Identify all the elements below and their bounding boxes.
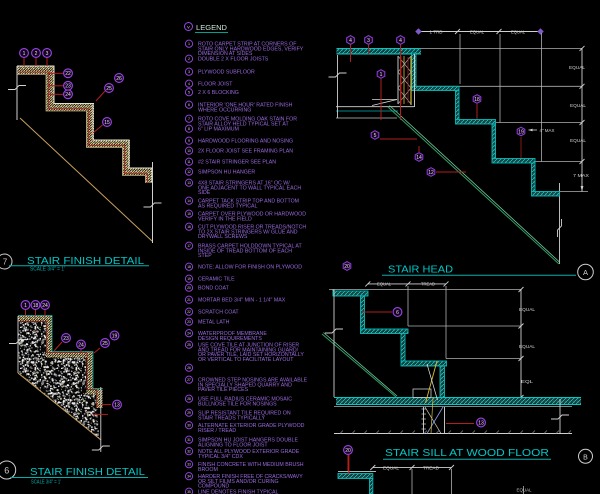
svg-text:SCRATCH COAT: SCRATCH COAT bbox=[198, 310, 239, 316]
svg-text:16: 16 bbox=[187, 225, 191, 229]
svg-text:5: 5 bbox=[374, 133, 377, 139]
svg-text:VERIFY IN THE FIELD: VERIFY IN THE FIELD bbox=[198, 216, 252, 222]
svg-text:CERAMIC TILE: CERAMIC TILE bbox=[198, 277, 235, 283]
svg-text:STAIR FINISH DETAIL: STAIR FINISH DETAIL bbox=[27, 255, 144, 267]
svg-text:25: 25 bbox=[102, 341, 108, 347]
svg-text:6: 6 bbox=[4, 466, 9, 476]
svg-text:12: 12 bbox=[187, 170, 191, 174]
svg-text:5: 5 bbox=[188, 91, 190, 95]
svg-text:MORTAR BED 3/4" MIN - 1 1/4" M: MORTAR BED 3/4" MIN - 1 1/4" MAX bbox=[198, 298, 286, 304]
svg-text:31: 31 bbox=[187, 438, 191, 442]
svg-text:23: 23 bbox=[63, 336, 69, 342]
svg-text:PAVER TILE PIECES: PAVER TILE PIECES bbox=[198, 387, 249, 393]
svg-text:2 X 6 BLOCKING: 2 X 6 BLOCKING bbox=[198, 90, 239, 96]
svg-text:3: 3 bbox=[46, 51, 49, 57]
svg-text:20: 20 bbox=[345, 448, 351, 454]
svg-text:26: 26 bbox=[116, 76, 122, 82]
svg-text:34: 34 bbox=[187, 475, 191, 479]
svg-text:10: 10 bbox=[187, 149, 191, 153]
svg-text:V: V bbox=[187, 25, 190, 30]
svg-text:BULLNOSE TILE FOR NOSINGS: BULLNOSE TILE FOR NOSINGS bbox=[198, 401, 277, 407]
svg-text:12: 12 bbox=[428, 170, 434, 176]
svg-text:EQUAL: EQUAL bbox=[470, 30, 484, 35]
svg-text:EQUAL: EQUAL bbox=[383, 466, 399, 471]
svg-text:ONE ADJACENT TO WALL TYPICAL E: ONE ADJACENT TO WALL TYPICAL EACH bbox=[198, 185, 301, 191]
svg-text:32: 32 bbox=[187, 450, 191, 454]
svg-text:STAIR TREADS TYPICALLY: STAIR TREADS TYPICALLY bbox=[198, 415, 266, 421]
svg-text:1: 1 bbox=[188, 42, 190, 46]
svg-text:22: 22 bbox=[187, 310, 191, 314]
svg-text:TREAD: TREAD bbox=[423, 466, 440, 471]
svg-text:BROOM: BROOM bbox=[198, 467, 218, 473]
svg-text:22: 22 bbox=[65, 71, 71, 77]
svg-text:35: 35 bbox=[187, 490, 191, 494]
svg-text:4" MAX: 4" MAX bbox=[540, 128, 555, 133]
svg-text:1: 1 bbox=[380, 72, 383, 78]
svg-text:30: 30 bbox=[187, 424, 191, 428]
svg-text:TYPICAL 3/4" CDX: TYPICAL 3/4" CDX bbox=[198, 454, 243, 460]
svg-text:ALIGNING TO FLOOR JOIST: ALIGNING TO FLOOR JOIST bbox=[198, 442, 268, 448]
svg-text:FLOOR JOIST: FLOOR JOIST bbox=[198, 82, 233, 88]
svg-text:SIMPSON HU HANGER: SIMPSON HU HANGER bbox=[198, 170, 255, 176]
svg-text:EQUAL: EQUAL bbox=[570, 103, 586, 108]
svg-text:EQUAL: EQUAL bbox=[570, 138, 586, 143]
svg-text:24: 24 bbox=[65, 92, 71, 98]
svg-text:20: 20 bbox=[187, 286, 191, 290]
svg-text:18: 18 bbox=[33, 303, 39, 309]
svg-text:14: 14 bbox=[416, 155, 422, 161]
svg-text:LEGEND: LEGEND bbox=[196, 23, 228, 32]
svg-text:25: 25 bbox=[106, 86, 112, 92]
svg-text:23: 23 bbox=[187, 320, 191, 324]
svg-text:EQUAL: EQUAL bbox=[377, 282, 391, 287]
svg-text:4: 4 bbox=[399, 38, 402, 44]
svg-text:NOTE: ALLOW FOR FINISH ON PLYW: NOTE: ALLOW FOR FINISH ON PLYWOOD bbox=[198, 265, 302, 271]
svg-text:4: 4 bbox=[349, 38, 352, 44]
svg-text:23: 23 bbox=[65, 84, 71, 90]
svg-text:STAIR SILL AT WOOD FLOOR: STAIR SILL AT WOOD FLOOR bbox=[385, 448, 549, 459]
svg-text:STAIR FINISH DETAIL: STAIR FINISH DETAIL bbox=[30, 466, 145, 478]
svg-text:2X FLOOR JOIST SEE FRAMING PLA: 2X FLOOR JOIST SEE FRAMING PLAN bbox=[198, 149, 293, 155]
svg-text:EQUAL: EQUAL bbox=[519, 344, 535, 349]
svg-text:SCALE 3/4" = 1': SCALE 3/4" = 1' bbox=[31, 480, 61, 486]
svg-text:33: 33 bbox=[187, 463, 191, 467]
svg-text:EQUAL: EQUAL bbox=[519, 307, 535, 312]
svg-text:4: 4 bbox=[188, 82, 190, 86]
svg-text:19: 19 bbox=[112, 333, 118, 339]
svg-text:DOUBLE 2 X FLOOR JOISTS: DOUBLE 2 X FLOOR JOISTS bbox=[198, 57, 269, 63]
svg-text:13: 13 bbox=[114, 402, 120, 408]
svg-text:EQUAL: EQUAL bbox=[517, 488, 533, 493]
svg-text:RISER / TREAD: RISER / TREAD bbox=[198, 428, 236, 434]
svg-text:STAIR HEAD: STAIR HEAD bbox=[388, 264, 453, 275]
svg-text:7: 7 bbox=[3, 258, 8, 267]
svg-text:17: 17 bbox=[187, 244, 191, 248]
svg-text:TREAD: TREAD bbox=[421, 282, 436, 287]
svg-text:24: 24 bbox=[42, 303, 48, 309]
svg-text:2: 2 bbox=[188, 57, 190, 61]
svg-text:WHERE OCCURRING: WHERE OCCURRING bbox=[198, 107, 251, 113]
svg-text:6" LIP MAXIMUM: 6" LIP MAXIMUM bbox=[198, 127, 239, 133]
svg-text:21: 21 bbox=[187, 298, 191, 302]
svg-text:3: 3 bbox=[367, 38, 370, 44]
svg-text:18: 18 bbox=[474, 97, 480, 103]
svg-text:B: B bbox=[583, 454, 588, 461]
svg-text:6: 6 bbox=[188, 103, 190, 107]
svg-text:28: 28 bbox=[187, 397, 191, 401]
svg-text:13: 13 bbox=[478, 420, 484, 426]
svg-text:1: 1 bbox=[24, 303, 27, 309]
svg-text:14: 14 bbox=[187, 199, 191, 203]
svg-text:8: 8 bbox=[188, 127, 190, 131]
svg-text:DESIGN REQUIREMENTS: DESIGN REQUIREMENTS bbox=[198, 336, 262, 342]
svg-text:27: 27 bbox=[187, 378, 191, 382]
svg-text:15: 15 bbox=[187, 212, 191, 216]
svg-text:METAL LATH: METAL LATH bbox=[198, 320, 230, 326]
svg-text:#2 STAIR STRINGER SEE PLAN: #2 STAIR STRINGER SEE PLAN bbox=[198, 160, 276, 166]
svg-text:OR VERTICAL TO FACILITATE LAYO: OR VERTICAL TO FACILITATE LAYOUT bbox=[198, 357, 294, 363]
svg-text:SCALE 3/4" = 1': SCALE 3/4" = 1' bbox=[30, 267, 65, 273]
svg-text:EQL: EQL bbox=[521, 379, 534, 384]
svg-text:1: 1 bbox=[23, 51, 26, 57]
svg-text:HARDWOOD FLOORING AND NOSING: HARDWOOD FLOORING AND NOSING bbox=[198, 139, 293, 145]
svg-text:24: 24 bbox=[78, 342, 84, 348]
svg-text:9: 9 bbox=[188, 139, 190, 143]
svg-text:LINE DENOTES FINISH TYPICAL: LINE DENOTES FINISH TYPICAL bbox=[198, 490, 279, 494]
svg-text:26: 26 bbox=[187, 366, 191, 370]
svg-text:19: 19 bbox=[518, 129, 524, 135]
svg-text:PLYWOOD SUBFLOOR: PLYWOOD SUBFLOOR bbox=[198, 70, 255, 76]
svg-text:7 MAX: 7 MAX bbox=[573, 173, 589, 178]
svg-text:EQUAL: EQUAL bbox=[511, 30, 525, 35]
svg-text:AS REQUIRED TYPICAL: AS REQUIRED TYPICAL bbox=[198, 203, 257, 209]
svg-text:3: 3 bbox=[188, 70, 190, 74]
svg-text:24: 24 bbox=[187, 332, 191, 336]
svg-text:7: 7 bbox=[188, 117, 190, 121]
svg-text:1 TRD: 1 TRD bbox=[430, 30, 444, 35]
svg-text:19: 19 bbox=[187, 277, 191, 281]
svg-text:18: 18 bbox=[187, 265, 191, 269]
svg-text:25: 25 bbox=[187, 343, 191, 347]
svg-text:STEP: STEP bbox=[198, 253, 212, 259]
svg-text:EQUAL: EQUAL bbox=[569, 65, 585, 70]
svg-text:11: 11 bbox=[187, 160, 191, 164]
svg-text:20: 20 bbox=[344, 264, 350, 270]
svg-text:SIDE: SIDE bbox=[198, 190, 211, 196]
svg-text:A: A bbox=[583, 268, 588, 277]
svg-text:DRYWALL SCREWS: DRYWALL SCREWS bbox=[198, 234, 248, 240]
svg-text:13: 13 bbox=[187, 181, 191, 185]
svg-text:15: 15 bbox=[104, 120, 110, 126]
svg-text:BOND COAT: BOND COAT bbox=[198, 286, 230, 292]
svg-text:6: 6 bbox=[396, 310, 399, 316]
svg-text:29: 29 bbox=[187, 411, 191, 415]
svg-text:INSIDE OF TREAD BOTTOM OF EACH: INSIDE OF TREAD BOTTOM OF EACH bbox=[198, 248, 292, 254]
svg-text:2: 2 bbox=[35, 51, 38, 57]
